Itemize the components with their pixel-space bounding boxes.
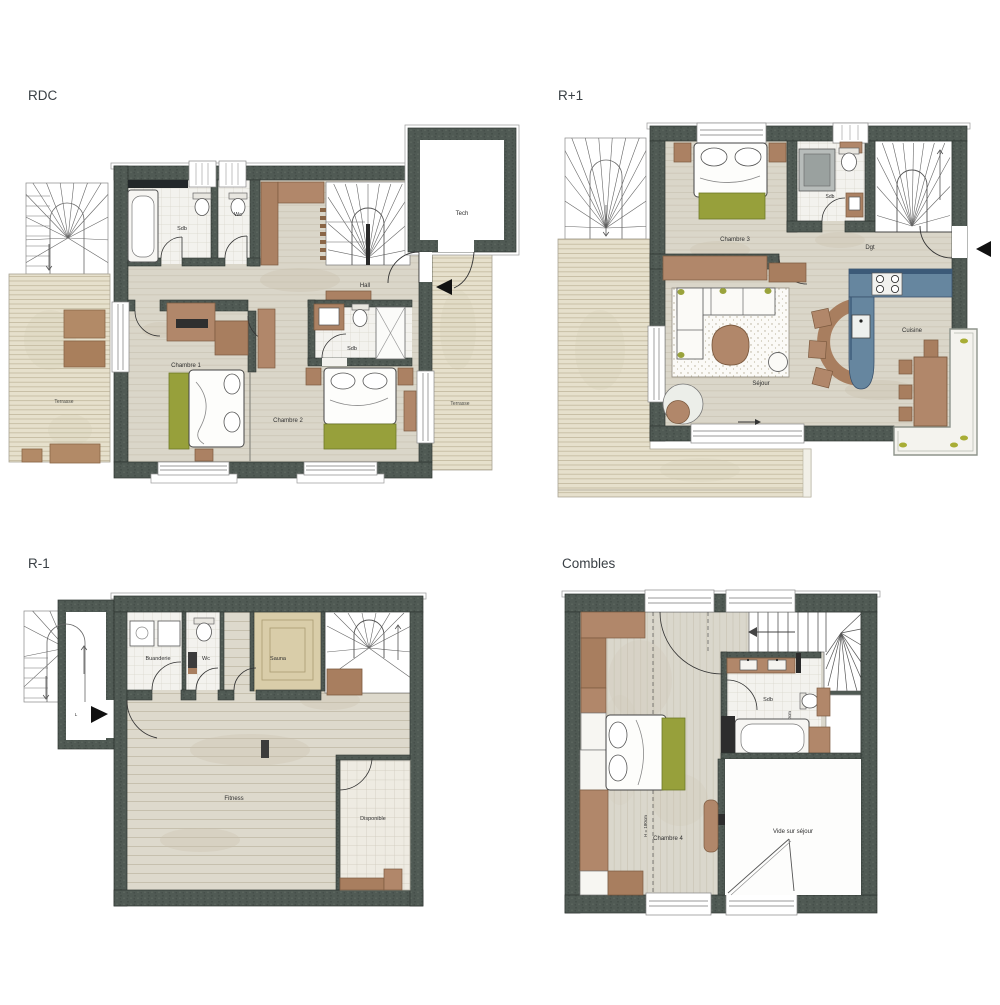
svg-text:Terrasse: Terrasse: [450, 401, 469, 407]
svg-text:Dgt: Dgt: [865, 245, 875, 251]
svg-text:Chambre 4: Chambre 4: [653, 836, 683, 842]
svg-text:Hall: Hall: [360, 283, 370, 289]
svg-text:Chambre 2: Chambre 2: [273, 418, 303, 424]
svg-text:Wc: Wc: [202, 656, 210, 662]
svg-text:Buanderie: Buanderie: [145, 656, 170, 662]
svg-text:R+1: R+1: [558, 88, 583, 103]
svg-text:Sdb: Sdb: [347, 346, 357, 352]
svg-text:R-1: R-1: [28, 556, 50, 571]
svg-text:Disponible: Disponible: [360, 816, 386, 822]
svg-text:Tech: Tech: [456, 211, 469, 217]
svg-text:Fitness: Fitness: [224, 796, 243, 802]
svg-text:Cuisine: Cuisine: [902, 328, 923, 334]
svg-text:Sdb: Sdb: [763, 697, 773, 703]
svg-text:Sdb: Sdb: [177, 226, 187, 232]
svg-text:Terrasse: Terrasse: [54, 399, 73, 405]
svg-text:Séjour: Séjour: [752, 381, 769, 387]
svg-text:Sauna: Sauna: [270, 656, 287, 662]
svg-text:Chambre 1: Chambre 1: [171, 363, 201, 369]
svg-text:H = 180cm: H = 180cm: [643, 815, 648, 837]
svg-text:Sdb: Sdb: [826, 194, 835, 200]
svg-text:Chambre 3: Chambre 3: [720, 237, 750, 243]
svg-text:Combles: Combles: [562, 556, 616, 571]
svg-text:Wc: Wc: [234, 212, 242, 218]
svg-text:RDC: RDC: [28, 88, 57, 103]
svg-text:Vide sur séjour: Vide sur séjour: [773, 829, 813, 835]
